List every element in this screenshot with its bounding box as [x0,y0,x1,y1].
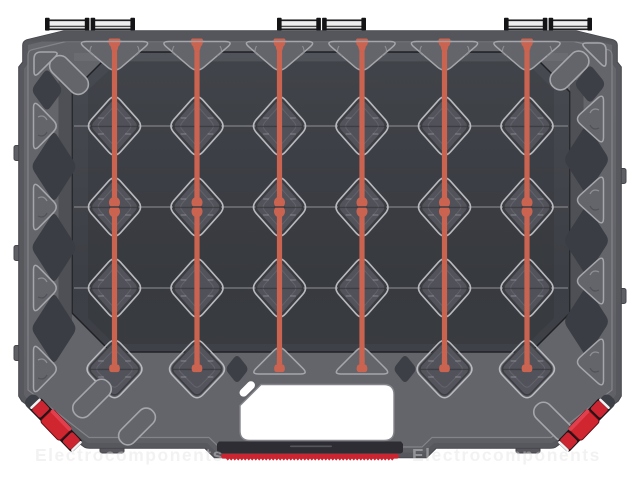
svg-text:Electrocomponents: Electrocomponents [35,445,224,465]
svg-text:Electrocomponents: Electrocomponents [412,445,601,465]
